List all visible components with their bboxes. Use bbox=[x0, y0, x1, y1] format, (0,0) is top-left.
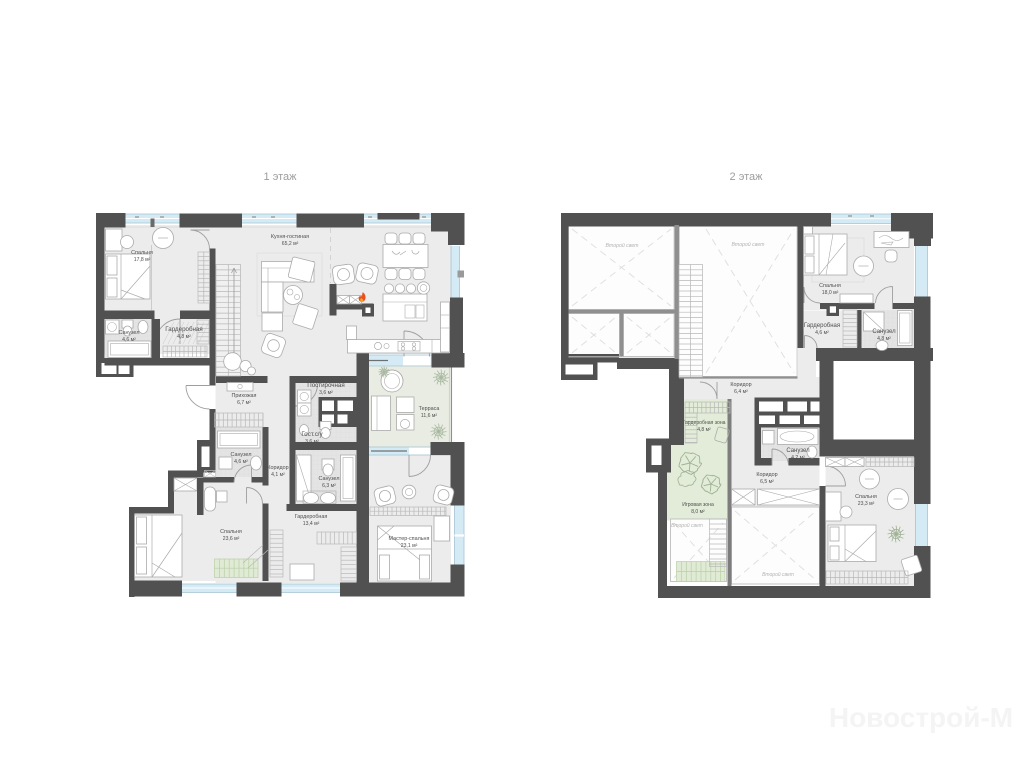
svg-text:2 этаж: 2 этаж bbox=[730, 171, 764, 183]
svg-text:4,6 м²: 4,6 м² bbox=[815, 330, 829, 336]
svg-text:Новострой-М: Новострой-М bbox=[829, 702, 1013, 733]
svg-text:Второй свет: Второй свет bbox=[731, 241, 765, 248]
svg-text:13,4 м²: 13,4 м² bbox=[303, 521, 320, 527]
svg-text:Гардеробная: Гардеробная bbox=[295, 514, 328, 520]
svg-text:23,1 м²: 23,1 м² bbox=[401, 543, 418, 549]
svg-text:Терраса: Терраса bbox=[419, 406, 440, 412]
svg-text:Спальня: Спальня bbox=[131, 250, 153, 256]
svg-text:Игровая зона: Игровая зона bbox=[682, 502, 714, 508]
svg-text:Мастер-спальня: Мастер-спальня bbox=[389, 536, 430, 542]
svg-text:Спальня: Спальня bbox=[855, 494, 877, 500]
svg-text:Второй свет: Второй свет bbox=[762, 571, 794, 578]
svg-text:Санузел: Санузел bbox=[319, 476, 340, 482]
svg-text:Кухня-гостиная: Кухня-гостиная bbox=[271, 234, 309, 240]
svg-text:6,3 м²: 6,3 м² bbox=[322, 483, 336, 489]
svg-text:4,8 м²: 4,8 м² bbox=[697, 427, 711, 433]
svg-text:Санузел: Санузел bbox=[786, 448, 810, 454]
svg-text:Гардеробная: Гардеробная bbox=[804, 323, 840, 329]
svg-text:65,2 м²: 65,2 м² bbox=[282, 241, 299, 247]
svg-text:Постирочная: Постирочная bbox=[307, 382, 344, 389]
svg-text:4,8 м²: 4,8 м² bbox=[877, 336, 891, 342]
svg-text:4,1 м²: 4,1 м² bbox=[271, 472, 285, 478]
svg-text:Спальня: Спальня bbox=[220, 529, 242, 535]
svg-text:6,5 м²: 6,5 м² bbox=[760, 479, 774, 485]
svg-text:4,2 м²: 4,2 м² bbox=[791, 455, 805, 461]
svg-text:6,7 м²: 6,7 м² bbox=[237, 400, 251, 406]
svg-text:Гардеробная зона: Гардеробная зона bbox=[683, 420, 726, 426]
svg-text:Гост.с/у: Гост.с/у bbox=[301, 431, 323, 438]
svg-text:Гардеробная: Гардеробная bbox=[165, 326, 202, 333]
svg-text:Спальня: Спальня bbox=[819, 283, 841, 289]
svg-text:Санузел: Санузел bbox=[872, 329, 896, 335]
svg-text:3,6 м²: 3,6 м² bbox=[319, 390, 333, 396]
svg-text:23,6 м²: 23,6 м² bbox=[223, 536, 240, 542]
svg-text:Коридор: Коридор bbox=[730, 382, 751, 388]
svg-text:8,0 м²: 8,0 м² bbox=[691, 509, 705, 515]
svg-text:4,8 м²: 4,8 м² bbox=[177, 334, 191, 340]
svg-text:Второй свет: Второй свет bbox=[671, 522, 703, 529]
svg-text:17,8 м²: 17,8 м² bbox=[134, 257, 151, 263]
svg-text:Второй свет: Второй свет bbox=[605, 242, 639, 249]
svg-text:Коридор: Коридор bbox=[756, 472, 777, 478]
svg-text:23,3 м²: 23,3 м² bbox=[858, 501, 875, 507]
svg-text:Коридор: Коридор bbox=[267, 465, 288, 471]
svg-text:4,6 м²: 4,6 м² bbox=[122, 337, 136, 343]
svg-text:1 этаж: 1 этаж bbox=[264, 171, 298, 183]
svg-text:Санузел: Санузел bbox=[119, 330, 140, 336]
svg-text:4,6 м²: 4,6 м² bbox=[234, 459, 248, 465]
svg-text:11,6 м²: 11,6 м² bbox=[421, 413, 437, 419]
svg-text:18,0 м²: 18,0 м² bbox=[822, 290, 839, 296]
svg-text:Санузел: Санузел bbox=[231, 452, 252, 458]
svg-text:3,6 м²: 3,6 м² bbox=[305, 439, 319, 445]
svg-text:6,4 м²: 6,4 м² bbox=[734, 389, 748, 395]
svg-text:Прихожая: Прихожая bbox=[232, 393, 257, 399]
